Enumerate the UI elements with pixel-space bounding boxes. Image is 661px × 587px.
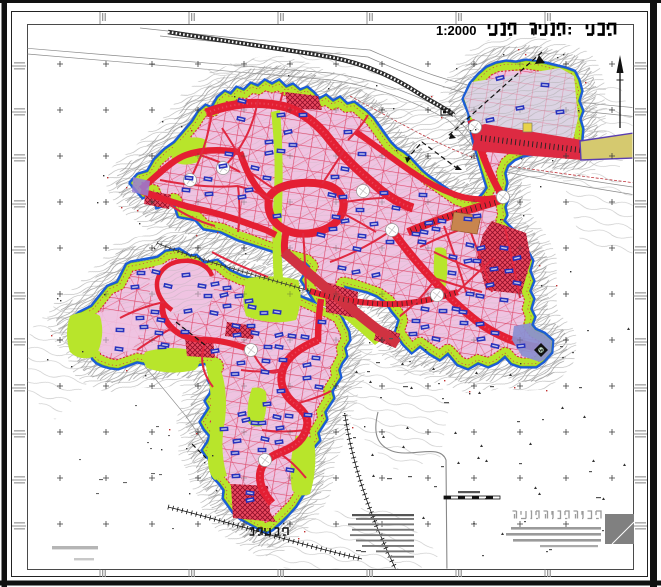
svg-text:1:2000: 1:2000 [436, 23, 476, 38]
